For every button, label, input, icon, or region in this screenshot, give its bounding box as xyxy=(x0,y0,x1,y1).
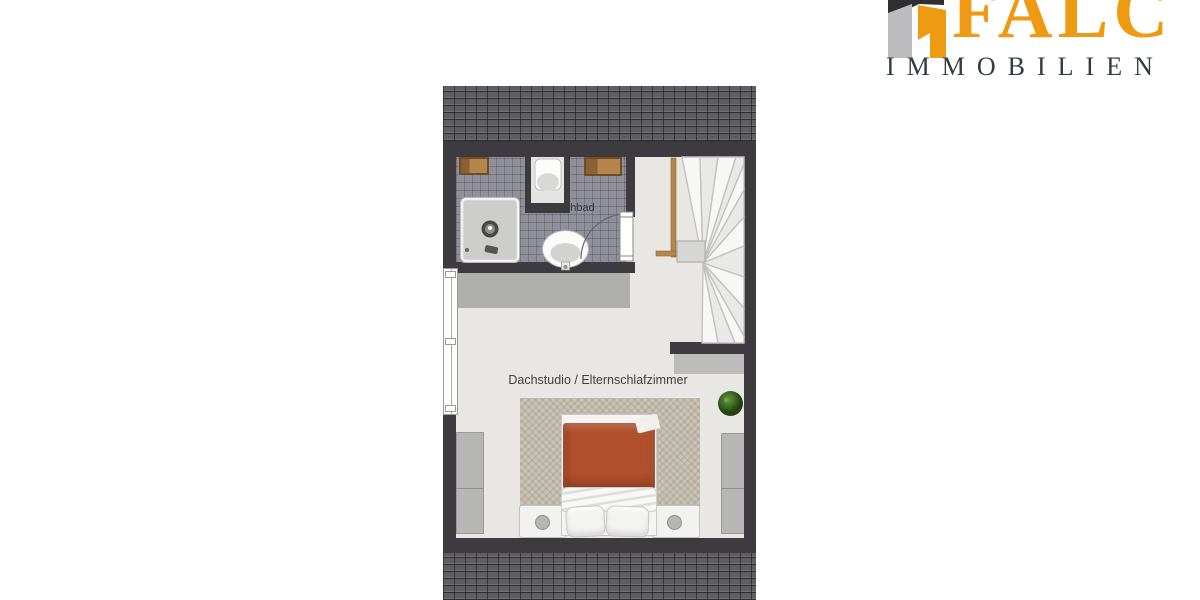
main-room-label: Dachstudio / Elternschlafzimmer xyxy=(448,373,748,387)
shower xyxy=(461,198,520,263)
falc-logo: FALC IMMOBILIEN xyxy=(880,0,1200,95)
falc-house-icon xyxy=(884,0,950,60)
staircase xyxy=(677,157,744,343)
plant xyxy=(718,391,743,416)
brand-subtitle: IMMOBILIEN xyxy=(886,54,1165,80)
bathroom-label: Duschbad xyxy=(525,202,615,214)
bathroom-door xyxy=(581,212,633,261)
stair-handrail xyxy=(656,158,676,257)
fixtures-overlay xyxy=(443,86,756,600)
floorplan-image: Duschbad Dachstudio / Elternschlafzimmer… xyxy=(0,0,1200,600)
brand-name: FALC xyxy=(952,0,1173,50)
